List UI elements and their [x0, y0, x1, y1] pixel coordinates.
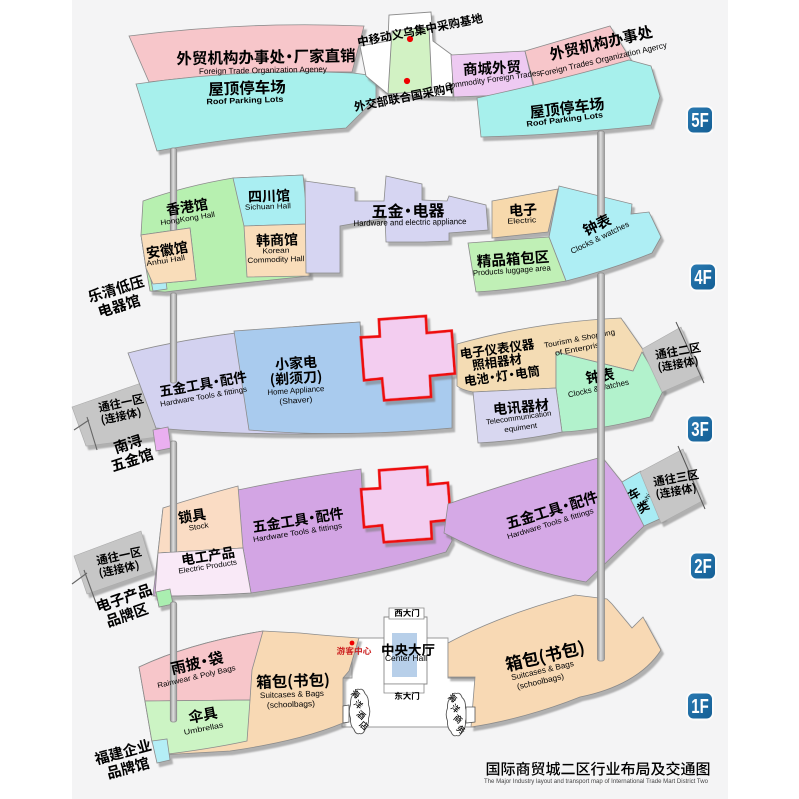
- svg-text:5F: 5F: [691, 110, 709, 132]
- svg-text:1F: 1F: [691, 696, 709, 718]
- svg-text:(schoolbags): (schoolbags): [267, 699, 316, 710]
- svg-text:The Major Industry layout and: The Major Industry layout and transport …: [484, 778, 708, 785]
- svg-text:4F: 4F: [694, 267, 712, 289]
- svg-text:2F: 2F: [694, 556, 712, 578]
- svg-text:3F: 3F: [691, 419, 709, 441]
- svg-text:Electric: Electric: [507, 215, 537, 226]
- svg-text:Center Hall: Center Hall: [385, 653, 427, 663]
- svg-text:Sichuan Hall: Sichuan Hall: [245, 201, 292, 212]
